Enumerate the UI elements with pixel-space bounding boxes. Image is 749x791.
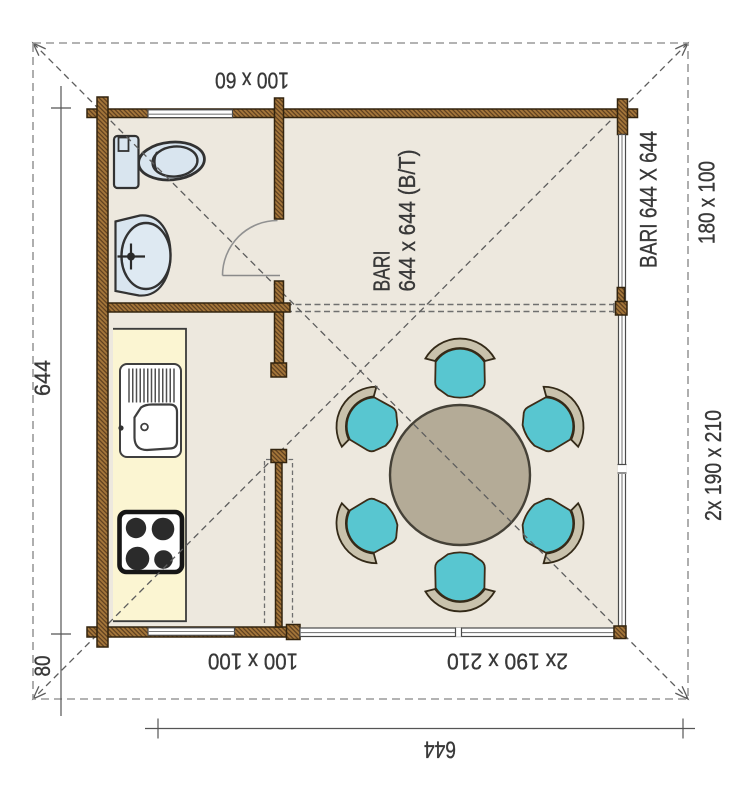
- svg-text:180 x 100: 180 x 100: [694, 161, 720, 244]
- svg-text:644: 644: [30, 360, 55, 396]
- svg-text:80: 80: [30, 656, 55, 677]
- svg-text:100 x 100: 100 x 100: [208, 649, 298, 675]
- svg-text:100 x 60: 100 x 60: [215, 68, 289, 94]
- svg-text:2x 190 x 210: 2x 190 x 210: [700, 410, 726, 521]
- svg-text:BARI 644 X 644: BARI 644 X 644: [636, 131, 663, 268]
- svg-text:644: 644: [424, 736, 456, 763]
- svg-text:BARI: BARI: [369, 251, 395, 292]
- svg-text:644 x 644 (B/T): 644 x 644 (B/T): [394, 150, 420, 292]
- svg-text:2x 190 x 210: 2x 190 x 210: [447, 649, 568, 675]
